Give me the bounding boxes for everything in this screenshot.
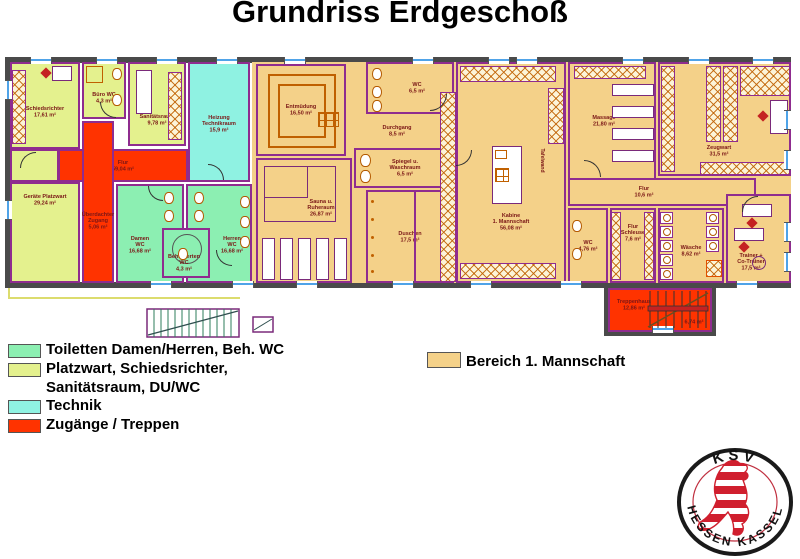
lounger-icon: [280, 238, 293, 280]
locker-row: [700, 162, 790, 175]
window: [412, 57, 434, 64]
locker-shelf: [168, 72, 182, 140]
room-label: Schiedsrichter 17,61 m²: [26, 106, 64, 118]
washing-machine-icon: [706, 240, 719, 252]
sink-icon: [495, 150, 507, 159]
massage-table: [612, 150, 654, 162]
shower-divider: [414, 192, 416, 281]
massage-table: [612, 84, 654, 96]
window: [156, 57, 178, 64]
window: [784, 222, 791, 242]
window: [488, 57, 510, 64]
toilet-icon: [178, 248, 188, 260]
toilet-icon: [572, 220, 582, 232]
window: [232, 281, 254, 288]
desk: [734, 228, 764, 241]
window: [784, 110, 791, 130]
legend-swatch-zugaenge: [8, 419, 41, 433]
room-geraete-platzwart: Geräte Platzwart 29,24 m²: [10, 182, 80, 283]
room-label: Duschen 17,5 m²: [398, 230, 421, 242]
washing-machine-icon: [706, 212, 719, 224]
legend-label: Platzwart, Schiedsrichter, Sanitätsraum,…: [46, 360, 228, 397]
room-label: Überdachter Zugang 5,06 m²: [82, 212, 114, 230]
room-label: Heizung Technikraum 15,9 m²: [202, 115, 236, 133]
legend-label: Zugänge / Treppen: [46, 416, 179, 435]
washing-machine-icon: [706, 226, 719, 238]
window: [752, 57, 774, 64]
toilet-icon: [240, 236, 250, 248]
room-label: WC 4,76 m²: [579, 239, 598, 251]
toilet-icon: [372, 86, 382, 98]
exterior-stairs: [146, 308, 240, 338]
washing-machine-icon: [660, 226, 673, 238]
stove-icon: [495, 168, 509, 182]
window: [560, 281, 582, 288]
toilet-icon: [112, 68, 122, 80]
legend-swatch-technik: [8, 400, 41, 414]
legend-swatch-toiletten: [8, 344, 41, 358]
window: [784, 252, 791, 272]
toilet-icon: [372, 68, 382, 80]
room-label: Damen WC 16,68 m²: [129, 236, 151, 254]
lounger-icon: [262, 238, 275, 280]
room-label: Flur 59,04 m²: [112, 159, 134, 171]
window: [784, 150, 791, 170]
room-label: WC 6,5 m²: [409, 82, 425, 94]
room-label: Zeugwart 31,5 m²: [707, 145, 731, 157]
window: [470, 281, 492, 288]
locker-row: [661, 66, 675, 172]
window: [296, 281, 318, 288]
washing-machine-icon: [660, 268, 673, 280]
corridor-flur: Flur 59,04 m²: [58, 149, 188, 182]
window: [622, 57, 644, 64]
legend-label: Bereich 1. Mannschaft: [466, 353, 625, 372]
site-boundary-line: [8, 297, 240, 299]
toilet-icon: [240, 196, 250, 208]
lift-shaft: [706, 260, 722, 277]
toilet-icon: [240, 216, 250, 228]
lounger-icon: [298, 238, 311, 280]
ksv-hessen-kassel-logo: KSV HESSEN KASSEL: [674, 446, 796, 558]
window: [284, 57, 306, 64]
room-label: Flur Schleuse 7,6 m²: [621, 223, 645, 241]
legend-swatch-bereich: [427, 352, 461, 368]
window: [688, 57, 710, 64]
shower-tray: [86, 66, 103, 83]
locker-row: [574, 66, 646, 79]
room-label: Kabine 1. Mannschaft 56,08 m²: [493, 213, 530, 231]
massage-table: [612, 106, 654, 118]
floor-plan-page: Grundriss Erdgeschoß Schiedsrichter 17,6…: [0, 0, 800, 559]
desk: [52, 66, 72, 81]
corridor-ueberdachter-zugang: Überdachter Zugang 5,06 m²: [82, 121, 114, 283]
window: [392, 281, 414, 288]
locker-row: [740, 66, 790, 96]
washing-machine-icon: [660, 254, 673, 266]
room-heizung-technik: Heizung Technikraum 15,9 m²: [188, 62, 250, 182]
sauna-bench: [264, 166, 308, 198]
page-title: Grundriss Erdgeschoß: [0, 0, 800, 30]
room-label: Wäsche 8,62 m²: [681, 245, 702, 257]
toilet-icon: [194, 210, 204, 222]
toilet-icon: [164, 210, 174, 222]
sink-icon: [360, 170, 371, 183]
room-label: Flur 10,6 m²: [634, 186, 653, 198]
legend-swatch-platzwart: [8, 363, 41, 377]
entry-step: [252, 316, 274, 333]
pool-inner: [278, 84, 326, 138]
legend-label: Technik: [46, 397, 102, 416]
window: [150, 281, 172, 288]
room-massage: Massage 21,80 m²: [568, 62, 656, 180]
toilet-icon: [164, 192, 174, 204]
legend-label: Toiletten Damen/Herren, Beh. WC: [46, 341, 284, 360]
lounger-icon: [316, 238, 329, 280]
window: [30, 57, 52, 64]
locker-row: [644, 212, 654, 280]
locker-row: [723, 66, 738, 142]
round-table: [752, 256, 766, 270]
room-label: Durchgang 8,5 m²: [382, 125, 411, 137]
tafelwand-label: Tafelwand: [539, 149, 545, 173]
window: [5, 200, 12, 220]
massage-table: [612, 128, 654, 140]
pool-steps: [318, 112, 339, 127]
washing-machine-icon: [660, 240, 673, 252]
room-label: Spiegel u. Waschraum 6,5 m²: [390, 159, 421, 177]
locker-row: [440, 92, 456, 282]
toilet-icon: [572, 248, 582, 260]
window: [736, 281, 758, 288]
locker-row: [460, 263, 556, 279]
locker-row: [706, 66, 721, 142]
window: [96, 57, 118, 64]
stair-treads: [610, 289, 710, 330]
site-boundary-line: [8, 288, 10, 299]
locker-shelf: [12, 70, 26, 144]
locker-row: [460, 66, 556, 82]
locker-row: [548, 88, 564, 144]
toilet-icon: [372, 100, 382, 112]
sink-icon: [360, 154, 371, 167]
window: [516, 57, 538, 64]
bed-icon: [136, 70, 152, 114]
washing-machine-icon: [660, 212, 673, 224]
room-label: Geräte Platzwart 29,24 m²: [23, 194, 66, 206]
toilet-icon: [194, 192, 204, 204]
lounger-icon: [334, 238, 347, 280]
window: [5, 80, 12, 100]
window: [216, 57, 238, 64]
locker-row: [611, 212, 621, 280]
